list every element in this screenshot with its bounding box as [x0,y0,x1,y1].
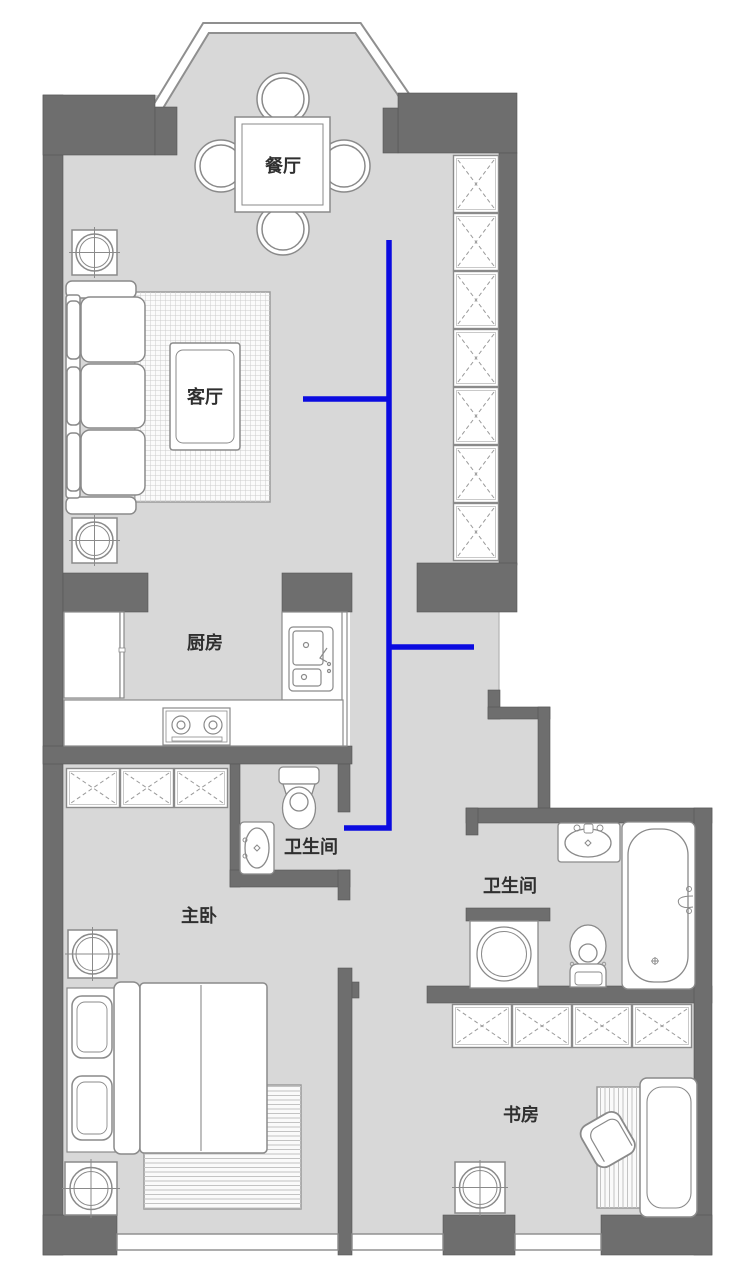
wall-bottom-middle [443,1215,515,1255]
washing-machine [470,921,538,988]
double-bed [67,982,267,1154]
wall-kitchen-bottom [43,746,352,764]
wardrobe-cell [513,1005,572,1048]
wardrobe-cell [454,504,499,561]
wall-top-left-notch [155,107,177,155]
floor-plan-canvas: 餐厅 客厅 厨房 卫生间 卫生间 主卧 书房 [0,0,750,1268]
room-label-study: 书房 [503,1104,539,1125]
room-label-master-bedroom: 主卧 [181,905,217,926]
bathtub [622,822,695,989]
wardrobe-cell [121,769,174,808]
bathroom-sink-icon [240,822,274,874]
wall-right-upper [499,153,517,565]
wall-bath-inner-right-bottom [338,870,350,900]
side-table-lamp [65,927,120,981]
window-hall [352,1234,443,1250]
wardrobe-cell [454,388,499,445]
wardrobe-cell [454,330,499,387]
wall-left-outer [43,95,63,1255]
sofa [66,281,145,514]
wall-top-right [398,93,517,153]
wardrobe-cell [175,769,228,808]
window-layer [117,1234,601,1250]
refrigerator [64,612,125,698]
wall-bath-inner-left [230,764,240,887]
bathroom-sink-icon [558,823,620,862]
wall-top-left [43,95,155,155]
wardrobe-cell [454,272,499,329]
wall-bedroom-study-divider [338,968,352,1255]
toilet-icon [279,767,319,829]
side-table-lamp [62,1159,120,1218]
wardrobe-cell [633,1005,692,1048]
wall-bath-main-top [466,808,712,823]
floor-plan-drawing: 餐厅 客厅 厨房 卫生间 卫生间 主卧 书房 [0,0,750,1268]
wardrobe-tall-right [454,156,499,561]
wall-door-tab [352,982,359,998]
wardrobe-cell [454,214,499,271]
side-table-lamp [69,515,120,566]
wall-bottom-right [601,1215,712,1255]
room-label-bathroom-inner: 卫生间 [284,836,338,857]
room-label-dining: 餐厅 [264,155,301,176]
wardrobe-cell [67,769,120,808]
gas-stove [163,708,230,745]
wardrobe-cell [573,1005,632,1048]
daybed [640,1078,697,1217]
toilet-icon [570,925,606,987]
side-table-lamp [452,1160,508,1216]
wall-step-c [538,707,550,812]
room-label-kitchen: 厨房 [187,632,223,653]
wall-bath-inner-right-top [338,764,350,812]
wardrobe-cell [454,446,499,503]
wall-top-right-notch [383,108,398,153]
room-label-bathroom-main: 卫生间 [483,875,537,896]
wall-corridor-block [417,563,517,612]
side-table-lamp [69,227,120,278]
window-bedroom [117,1234,338,1250]
wardrobe-cell [454,156,499,213]
wardrobe-cell [453,1005,512,1048]
room-label-living: 客厅 [187,386,223,407]
kitchen-sink [289,627,333,691]
wardrobe-bedroom [67,769,228,808]
wall-bath-main-door-stub [466,808,478,835]
wall-washer-niche [466,908,550,921]
wall-kitchen-left [63,573,148,612]
wall-bottom-left [43,1215,117,1255]
wall-kitchen-right [282,573,352,612]
wardrobe-study [453,1005,692,1048]
window-study [515,1234,601,1250]
